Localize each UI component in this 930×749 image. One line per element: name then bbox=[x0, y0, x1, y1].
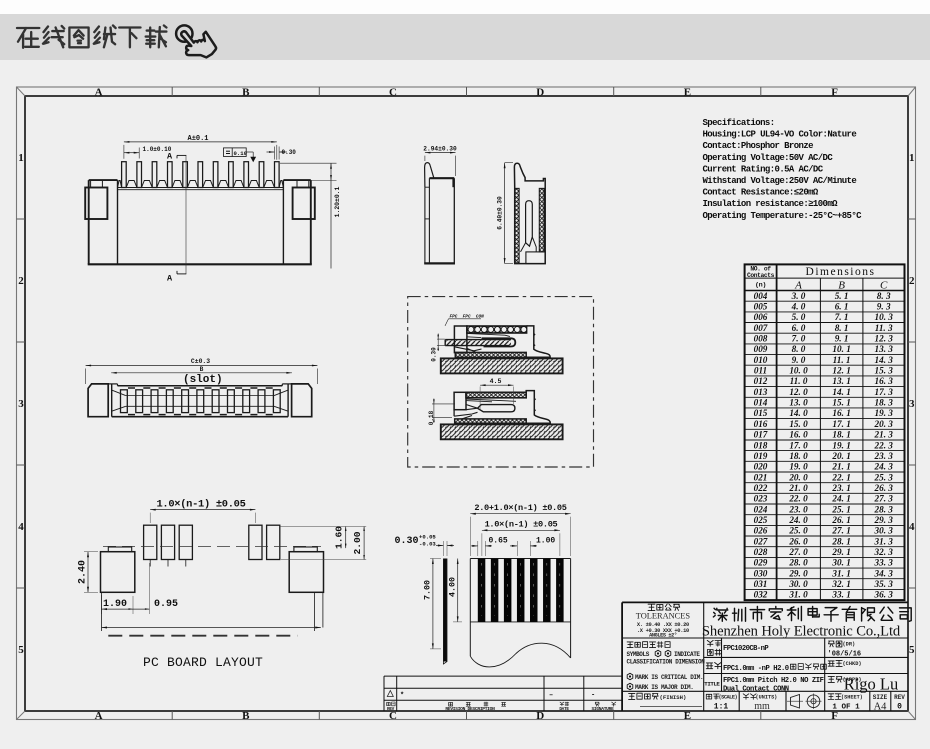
svg-text:8. 3: 8. 3 bbox=[877, 291, 891, 301]
svg-text:Withstand Voltage:250V AC/Minu: Withstand Voltage:250V AC/Minute bbox=[703, 176, 857, 186]
svg-text:4: 4 bbox=[18, 521, 24, 533]
svg-text:14. 3: 14. 3 bbox=[875, 355, 894, 365]
svg-text:27. 3: 27. 3 bbox=[874, 494, 894, 504]
svg-text:MARK IS CRITICAL DIM.: MARK IS CRITICAL DIM. bbox=[635, 674, 703, 681]
svg-text:'08/5/16: '08/5/16 bbox=[828, 651, 862, 659]
svg-text:4.5: 4.5 bbox=[490, 378, 502, 385]
svg-text:1:1: 1:1 bbox=[714, 703, 729, 712]
svg-text:12. 1: 12. 1 bbox=[832, 366, 850, 376]
svg-text:0.65: 0.65 bbox=[489, 537, 508, 546]
svg-text:22. 3: 22. 3 bbox=[874, 440, 894, 450]
svg-text:18. 1: 18. 1 bbox=[832, 430, 850, 440]
svg-text:17. 0: 17. 0 bbox=[789, 440, 808, 450]
svg-text:B: B bbox=[242, 710, 250, 722]
svg-text:2: 2 bbox=[909, 275, 915, 287]
svg-text:017: 017 bbox=[754, 430, 768, 440]
svg-text:(SCALE): (SCALE) bbox=[719, 695, 738, 701]
svg-text:012: 012 bbox=[754, 376, 768, 386]
svg-text:(n): (n) bbox=[755, 282, 766, 290]
svg-text:36. 3: 36. 3 bbox=[874, 590, 894, 600]
svg-text:13. 0: 13. 0 bbox=[789, 398, 808, 408]
svg-text:CLASSIFICATION DIMENSION: CLASSIFICATION DIMENSION bbox=[627, 659, 706, 666]
svg-text:28. 3: 28. 3 bbox=[874, 504, 894, 514]
svg-text:6. 1: 6. 1 bbox=[835, 302, 849, 312]
svg-text:6. 0: 6. 0 bbox=[792, 323, 806, 333]
svg-text:Dimensions: Dimensions bbox=[806, 266, 876, 278]
svg-text:32. 1: 32. 1 bbox=[831, 579, 850, 589]
svg-text:Operating Temperature:-25°C~+8: Operating Temperature:-25°C~+85°C bbox=[703, 211, 863, 221]
svg-text:7. 1: 7. 1 bbox=[835, 312, 849, 322]
svg-text:–: – bbox=[549, 692, 553, 700]
svg-text:B: B bbox=[838, 279, 845, 291]
svg-text:F: F bbox=[831, 710, 838, 722]
svg-text:REV: REV bbox=[387, 707, 395, 712]
svg-text:15. 3: 15. 3 bbox=[875, 366, 894, 376]
svg-text:C: C bbox=[389, 87, 397, 99]
svg-text:10. 0: 10. 0 bbox=[789, 366, 808, 376]
svg-text:5. 0: 5. 0 bbox=[792, 312, 806, 322]
svg-text:11. 3: 11. 3 bbox=[875, 323, 893, 333]
svg-text:2.94±0.30: 2.94±0.30 bbox=[423, 146, 457, 153]
svg-text:011: 011 bbox=[754, 366, 767, 376]
svg-text:MARK IS MAJOR DIM.: MARK IS MAJOR DIM. bbox=[635, 684, 694, 691]
svg-text:27. 1: 27. 1 bbox=[831, 526, 850, 536]
svg-text:A±0.1: A±0.1 bbox=[188, 135, 209, 143]
svg-text:INDICATE: INDICATE bbox=[674, 651, 700, 658]
svg-text:23. 1: 23. 1 bbox=[831, 483, 850, 493]
svg-text:0.30: 0.30 bbox=[430, 347, 437, 362]
svg-text:30. 0: 30. 0 bbox=[788, 579, 808, 589]
svg-text:13. 3: 13. 3 bbox=[875, 344, 894, 354]
svg-text:4. 0: 4. 0 bbox=[791, 302, 806, 312]
svg-text:018: 018 bbox=[754, 440, 768, 450]
svg-text:006: 006 bbox=[754, 312, 768, 322]
svg-text:016: 016 bbox=[754, 419, 768, 429]
svg-text:20. 0: 20. 0 bbox=[788, 472, 808, 482]
svg-text:28. 0: 28. 0 bbox=[788, 558, 808, 568]
svg-text:31. 0: 31. 0 bbox=[788, 590, 808, 600]
svg-text:A: A bbox=[95, 710, 103, 722]
svg-text:8. 1: 8. 1 bbox=[835, 323, 849, 333]
svg-text:5: 5 bbox=[909, 644, 915, 656]
svg-text:030: 030 bbox=[754, 568, 768, 578]
svg-text:1 OF 1: 1 OF 1 bbox=[832, 704, 860, 712]
svg-text:23. 3: 23. 3 bbox=[874, 451, 894, 461]
svg-text:1.20±0.1: 1.20±0.1 bbox=[334, 186, 341, 217]
svg-text:027: 027 bbox=[754, 536, 768, 546]
svg-text:32. 3: 32. 3 bbox=[874, 547, 894, 557]
svg-text:8. 0: 8. 0 bbox=[792, 344, 806, 354]
svg-text:9. 0: 9. 0 bbox=[792, 355, 806, 365]
svg-text:5: 5 bbox=[18, 644, 24, 656]
svg-text:28. 1: 28. 1 bbox=[831, 536, 850, 546]
svg-text:-: - bbox=[591, 692, 595, 700]
svg-text:F: F bbox=[831, 87, 838, 99]
svg-text:2.0+1.0×(n-1) ±0.05: 2.0+1.0×(n-1) ±0.05 bbox=[474, 503, 566, 513]
svg-text:24. 1: 24. 1 bbox=[831, 494, 850, 504]
svg-text:1.0×(n-1) ±0.05: 1.0×(n-1) ±0.05 bbox=[485, 520, 558, 530]
svg-text:7.00: 7.00 bbox=[423, 580, 433, 600]
svg-text:12. 0: 12. 0 bbox=[789, 387, 808, 397]
svg-text:14. 1: 14. 1 bbox=[832, 387, 850, 397]
svg-text:C: C bbox=[880, 279, 888, 291]
svg-text:12. 3: 12. 3 bbox=[875, 334, 894, 344]
svg-text:013: 013 bbox=[754, 387, 768, 397]
svg-text:24. 0: 24. 0 bbox=[788, 515, 808, 525]
svg-text:3: 3 bbox=[18, 398, 24, 410]
svg-text:Contact:Phosphor Bronze: Contact:Phosphor Bronze bbox=[703, 141, 814, 151]
svg-text:SIZE: SIZE bbox=[873, 694, 888, 701]
svg-text:2.00: 2.00 bbox=[352, 531, 363, 554]
svg-text:FPC1020CB-nP: FPC1020CB-nP bbox=[723, 645, 769, 653]
svg-text:FPC1.0mm -nP H2.0: FPC1.0mm -nP H2.0 bbox=[723, 665, 789, 673]
svg-text:Specifications:: Specifications: bbox=[703, 118, 775, 128]
svg-text:SIGNATURE: SIGNATURE bbox=[591, 706, 614, 712]
svg-text:9. 3: 9. 3 bbox=[877, 302, 891, 312]
svg-text:25. 3: 25. 3 bbox=[874, 472, 894, 482]
svg-text:23. 0: 23. 0 bbox=[788, 504, 808, 514]
svg-text:29. 0: 29. 0 bbox=[788, 568, 808, 578]
svg-text:031: 031 bbox=[754, 579, 768, 589]
svg-text:1.0±0.10: 1.0±0.10 bbox=[143, 146, 172, 153]
svg-text:29. 1: 29. 1 bbox=[831, 547, 850, 557]
svg-text:B: B bbox=[200, 366, 204, 373]
svg-text:5. 1: 5. 1 bbox=[835, 291, 849, 301]
svg-text:16. 1: 16. 1 bbox=[832, 408, 850, 418]
svg-text:17. 1: 17. 1 bbox=[832, 419, 850, 429]
svg-text:Shenzhen Holy Electronic Co.,L: Shenzhen Holy Electronic Co.,Ltd bbox=[702, 624, 901, 640]
svg-text:20. 3: 20. 3 bbox=[874, 419, 894, 429]
svg-text:023: 023 bbox=[754, 494, 768, 504]
svg-text:15. 1: 15. 1 bbox=[832, 398, 850, 408]
svg-text:025: 025 bbox=[754, 515, 768, 525]
svg-text:Dual Contact CONN: Dual Contact CONN bbox=[723, 686, 789, 694]
svg-text:(FINISH): (FINISH) bbox=[660, 694, 687, 701]
svg-text:24. 3: 24. 3 bbox=[874, 462, 894, 472]
svg-text:22. 1: 22. 1 bbox=[831, 472, 850, 482]
svg-text:4.00: 4.00 bbox=[447, 577, 457, 597]
svg-text:D: D bbox=[536, 87, 544, 99]
svg-text:B: B bbox=[242, 87, 250, 99]
svg-text:3. 0: 3. 0 bbox=[791, 291, 806, 301]
svg-text:21. 1: 21. 1 bbox=[831, 462, 850, 472]
svg-text:19. 0: 19. 0 bbox=[789, 462, 808, 472]
svg-text:1: 1 bbox=[18, 152, 24, 164]
svg-text:(CHKD): (CHKD) bbox=[843, 661, 862, 667]
svg-text:015: 015 bbox=[754, 408, 768, 418]
svg-text:SYMBOLS: SYMBOLS bbox=[627, 651, 650, 658]
svg-text:E: E bbox=[684, 87, 691, 99]
svg-text:7. 0: 7. 0 bbox=[792, 334, 806, 344]
svg-text:16. 3: 16. 3 bbox=[875, 376, 894, 386]
svg-text:35. 3: 35. 3 bbox=[874, 579, 894, 589]
svg-text:31. 3: 31. 3 bbox=[874, 536, 894, 546]
svg-text:0.18: 0.18 bbox=[428, 410, 435, 425]
svg-text:-0.03: -0.03 bbox=[419, 541, 436, 548]
svg-text:032: 032 bbox=[754, 590, 768, 600]
svg-text:26. 1: 26. 1 bbox=[831, 515, 850, 525]
svg-text:19. 1: 19. 1 bbox=[832, 440, 850, 450]
svg-text:0.95: 0.95 bbox=[154, 599, 178, 610]
svg-text:4: 4 bbox=[909, 521, 915, 533]
svg-text:A: A bbox=[167, 274, 173, 284]
svg-text:25. 0: 25. 0 bbox=[788, 526, 808, 536]
svg-text:DATE: DATE bbox=[559, 707, 569, 712]
svg-text:A: A bbox=[794, 279, 802, 291]
svg-text:REVISION DESCRIPTION: REVISION DESCRIPTION bbox=[445, 706, 495, 712]
svg-text:(DR): (DR) bbox=[843, 642, 856, 648]
svg-text:005: 005 bbox=[754, 302, 768, 312]
svg-text:mm: mm bbox=[754, 701, 770, 712]
svg-text:020: 020 bbox=[754, 462, 768, 472]
svg-text:3: 3 bbox=[909, 398, 915, 410]
svg-text:Current Rating:0.5A AC/DC: Current Rating:0.5A AC/DC bbox=[703, 164, 824, 174]
svg-text:E: E bbox=[684, 710, 691, 722]
svg-text:18. 0: 18. 0 bbox=[789, 451, 808, 461]
svg-text:26. 0: 26. 0 bbox=[788, 536, 808, 546]
svg-text:Insulation resistance:≥100mΩ: Insulation resistance:≥100mΩ bbox=[703, 199, 839, 209]
svg-text:20. 1: 20. 1 bbox=[831, 451, 850, 461]
svg-text:Operating Voltage:50V AC/DC: Operating Voltage:50V AC/DC bbox=[703, 153, 834, 163]
svg-text:22. 0: 22. 0 bbox=[788, 494, 808, 504]
svg-text:008: 008 bbox=[754, 334, 768, 344]
svg-text:004: 004 bbox=[754, 291, 768, 301]
svg-text:15. 0: 15. 0 bbox=[789, 419, 808, 429]
svg-text:11. 0: 11. 0 bbox=[790, 376, 808, 386]
svg-text:PC BOARD LAYOUT: PC BOARD LAYOUT bbox=[143, 655, 263, 670]
svg-text:007: 007 bbox=[754, 323, 768, 333]
svg-text:31. 1: 31. 1 bbox=[831, 568, 850, 578]
svg-text:021: 021 bbox=[754, 472, 768, 482]
svg-text:ANGLES ±2°: ANGLES ±2° bbox=[649, 633, 677, 639]
svg-text:2.40: 2.40 bbox=[78, 560, 89, 584]
svg-text:9. 1: 9. 1 bbox=[835, 334, 849, 344]
svg-text:0.30: 0.30 bbox=[282, 149, 297, 156]
svg-text:C±0.3: C±0.3 bbox=[191, 358, 210, 365]
svg-text:29. 3: 29. 3 bbox=[874, 515, 894, 525]
svg-text:022: 022 bbox=[754, 483, 768, 493]
svg-text:028: 028 bbox=[754, 547, 768, 557]
svg-text:17. 3: 17. 3 bbox=[875, 387, 894, 397]
svg-text:0: 0 bbox=[897, 703, 902, 712]
svg-text:TITLE: TITLE bbox=[704, 681, 720, 688]
svg-text:026: 026 bbox=[754, 526, 768, 536]
svg-text:0.10: 0.10 bbox=[234, 150, 248, 157]
svg-text:11. 1: 11. 1 bbox=[833, 355, 851, 365]
svg-text:+0.05: +0.05 bbox=[419, 534, 436, 541]
svg-text:Housing:LCP UL94-VO Color:Natu: Housing:LCP UL94-VO Color:Nature bbox=[703, 130, 857, 140]
svg-text:1.90: 1.90 bbox=[103, 599, 127, 610]
svg-text:6.40±0.30: 6.40±0.30 bbox=[497, 196, 504, 230]
svg-text:34. 3: 34. 3 bbox=[874, 568, 894, 578]
svg-text:1.60: 1.60 bbox=[334, 526, 345, 549]
svg-text:1.0×(n-1) ±0.05: 1.0×(n-1) ±0.05 bbox=[156, 498, 245, 510]
svg-text:009: 009 bbox=[754, 344, 768, 354]
svg-text:019: 019 bbox=[754, 451, 768, 461]
svg-text:Contact Resistance:≤20mΩ: Contact Resistance:≤20mΩ bbox=[703, 188, 819, 198]
svg-text:30. 3: 30. 3 bbox=[874, 526, 894, 536]
svg-text:A: A bbox=[95, 87, 103, 99]
svg-text:33. 3: 33. 3 bbox=[874, 558, 894, 568]
svg-text:(SHEET): (SHEET) bbox=[841, 695, 863, 701]
svg-text:D: D bbox=[536, 710, 544, 722]
svg-text:029: 029 bbox=[754, 558, 768, 568]
svg-text:2: 2 bbox=[18, 275, 24, 287]
svg-text:26. 3: 26. 3 bbox=[874, 483, 894, 493]
svg-text:0.30: 0.30 bbox=[395, 536, 419, 547]
svg-text:010: 010 bbox=[754, 355, 768, 365]
svg-text:1.00: 1.00 bbox=[536, 537, 555, 546]
svg-text:(UNITS): (UNITS) bbox=[756, 695, 778, 701]
svg-text:16. 0: 16. 0 bbox=[789, 430, 808, 440]
svg-text:REV: REV bbox=[894, 694, 905, 701]
svg-text:19. 3: 19. 3 bbox=[875, 408, 894, 418]
svg-text:25. 1: 25. 1 bbox=[831, 504, 850, 514]
svg-text:13. 1: 13. 1 bbox=[832, 376, 850, 386]
svg-text:Contacts: Contacts bbox=[747, 272, 775, 279]
svg-text:30. 1: 30. 1 bbox=[831, 558, 850, 568]
svg-text:FPC1.0mm Pitch H2.0 NO ZIF: FPC1.0mm Pitch H2.0 NO ZIF bbox=[723, 677, 824, 685]
svg-text:14. 0: 14. 0 bbox=[789, 408, 808, 418]
svg-text:1: 1 bbox=[909, 152, 915, 164]
svg-text:21. 0: 21. 0 bbox=[788, 483, 808, 493]
svg-text:21. 3: 21. 3 bbox=[874, 430, 894, 440]
svg-text:10. 3: 10. 3 bbox=[875, 312, 894, 322]
svg-text:(slot): (slot) bbox=[183, 374, 223, 386]
svg-text:A4: A4 bbox=[874, 702, 888, 713]
svg-text:18. 3: 18. 3 bbox=[875, 398, 894, 408]
svg-text:Rigo Lu: Rigo Lu bbox=[844, 675, 899, 694]
svg-text:10. 1: 10. 1 bbox=[832, 344, 850, 354]
svg-text:27. 0: 27. 0 bbox=[788, 547, 808, 557]
svg-text:*: * bbox=[400, 692, 404, 700]
svg-text:014: 014 bbox=[754, 398, 768, 408]
svg-text:024: 024 bbox=[754, 504, 768, 514]
svg-text:TOLERANCES: TOLERANCES bbox=[636, 612, 691, 621]
svg-text:33. 1: 33. 1 bbox=[831, 590, 850, 600]
